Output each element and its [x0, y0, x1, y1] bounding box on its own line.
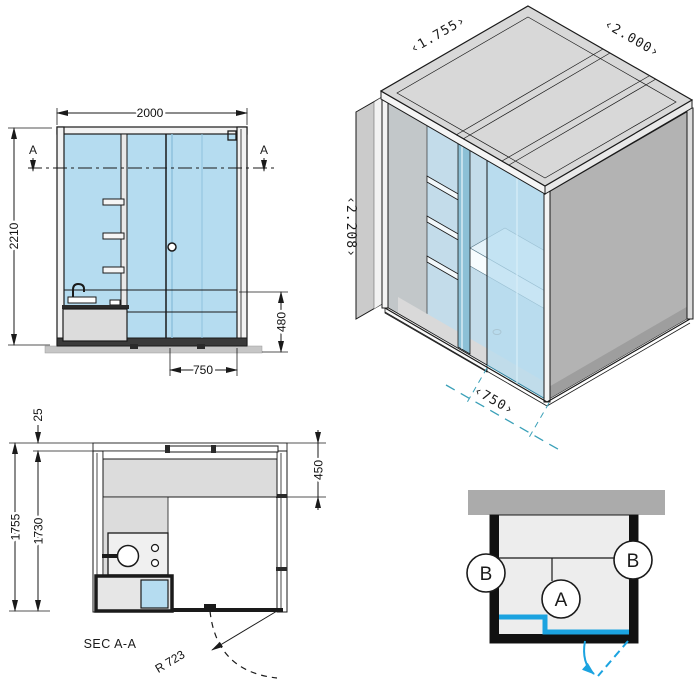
- interior-side-wall: [385, 99, 427, 330]
- dimension-depth-1730: 1730: [32, 451, 46, 611]
- wall-edge-strip: [374, 97, 382, 309]
- room-schematic: B B A: [467, 490, 665, 676]
- ground-strip: [45, 346, 262, 353]
- svg-text:‹750›: ‹750›: [471, 383, 517, 418]
- plan-view: R 723 25 1755 1730 450: [9, 408, 327, 678]
- svg-text:25: 25: [31, 408, 45, 422]
- building-wall-strip: [468, 490, 665, 515]
- sink-bowl: [118, 546, 139, 567]
- shower-glass-plan: [141, 580, 168, 608]
- iso-dim-height: ‹2.208›: [343, 196, 358, 258]
- front-elevation-view: A A 2000 2210 480: [7, 106, 289, 377]
- dimension-width-2000: 2000: [57, 106, 247, 125]
- svg-text:A: A: [555, 590, 568, 611]
- foot: [197, 344, 205, 349]
- drawing-svg: A A 2000 2210 480: [0, 0, 700, 700]
- marker-circle-b-right: B: [614, 541, 652, 579]
- svg-text:750: 750: [193, 363, 213, 377]
- dimension-bench-450: 450: [287, 430, 326, 510]
- svg-text:2210: 2210: [7, 222, 21, 249]
- dimension-ledge-25: 25: [9, 408, 93, 469]
- svg-text:2000: 2000: [137, 106, 164, 120]
- glass-partition: [458, 141, 470, 354]
- section-marker-right: A: [260, 143, 268, 171]
- svg-text:B: B: [627, 551, 640, 572]
- svg-text:A: A: [260, 143, 268, 157]
- washbasin-cabinet: [63, 309, 127, 341]
- foot: [130, 344, 138, 349]
- svg-text:1755: 1755: [9, 513, 23, 540]
- section-marker-left: A: [29, 143, 37, 171]
- svg-text:450: 450: [312, 460, 326, 480]
- door-swing: R 723: [153, 611, 277, 678]
- technical-drawing-sheet: A A 2000 2210 480: [0, 0, 700, 700]
- isometric-view: ‹1.755› ‹2.000› ‹2.208› ‹750›: [343, 6, 693, 452]
- bench-plan: [103, 459, 277, 497]
- dimension-height-2210: 2210: [7, 128, 52, 345]
- shower-tray: [96, 576, 172, 611]
- marker-circle-a: A: [542, 580, 580, 618]
- sink-counter: [102, 533, 168, 575]
- door-handle-plan: [204, 604, 216, 612]
- room-outline: [490, 515, 638, 643]
- svg-text:480: 480: [275, 312, 289, 332]
- svg-text:A: A: [29, 143, 37, 157]
- entry-door-swing: [584, 641, 628, 676]
- door-swing-arc: [210, 611, 277, 678]
- section-title: SEC A-A: [84, 637, 137, 651]
- svg-text:1730: 1730: [32, 517, 46, 544]
- door-radius-label: R 723: [153, 647, 188, 676]
- marker-circle-b-left: B: [467, 554, 505, 592]
- svg-text:B: B: [480, 564, 493, 585]
- door-handle: [168, 243, 176, 251]
